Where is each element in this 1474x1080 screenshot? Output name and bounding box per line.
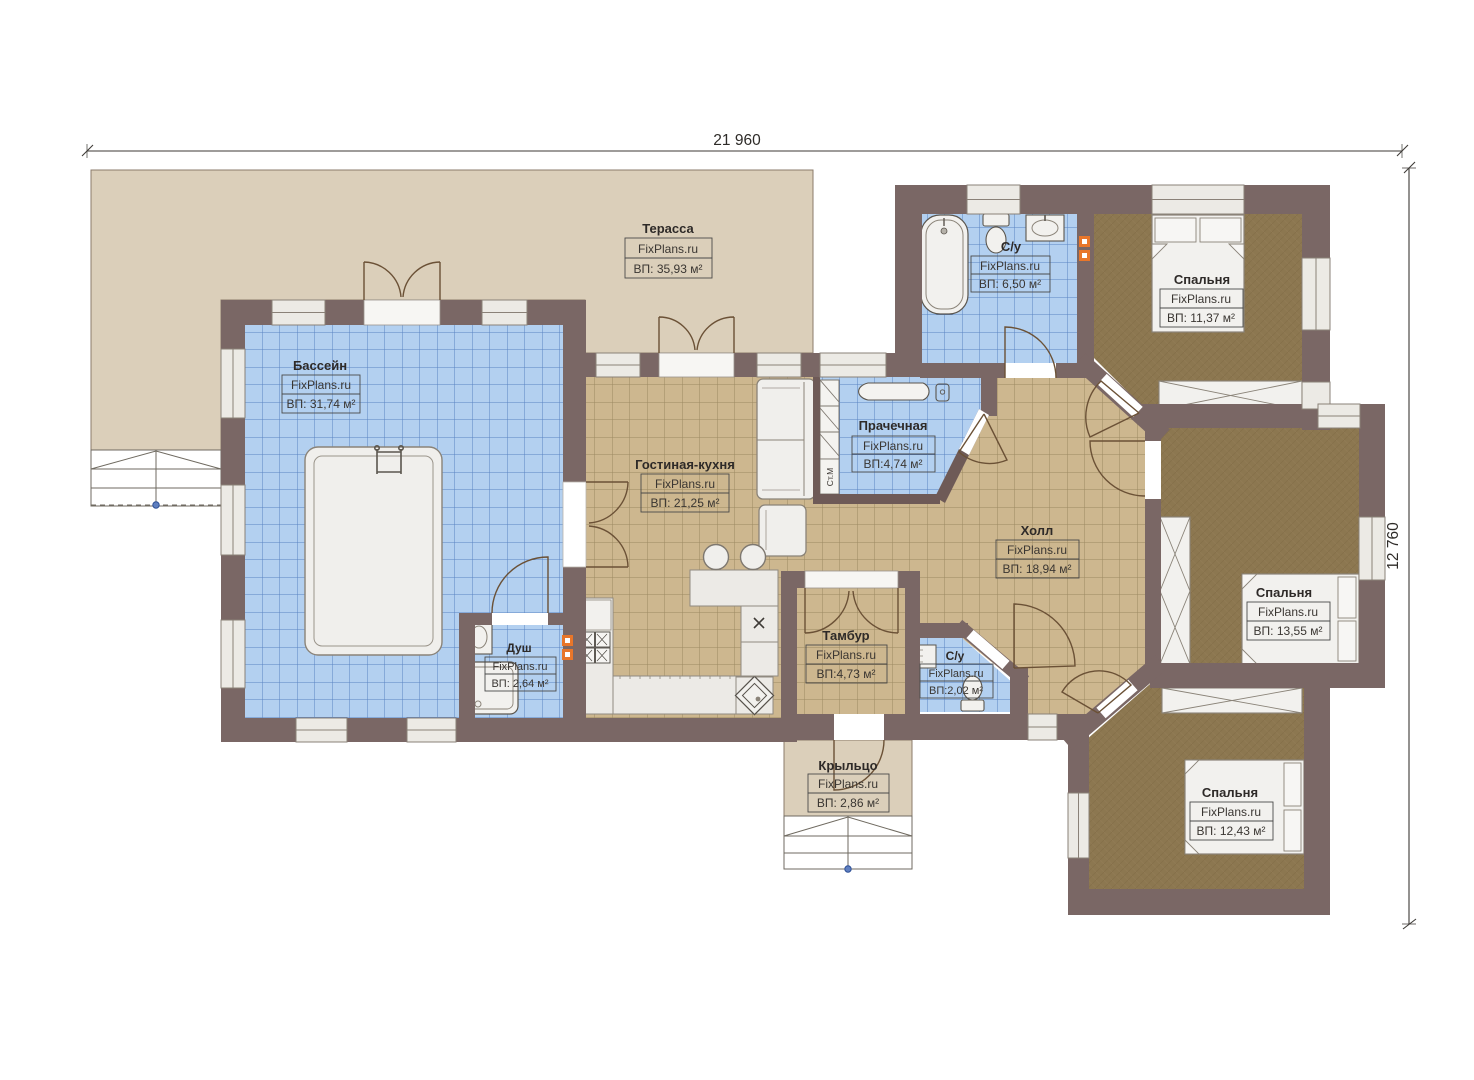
svg-text:Спальня: Спальня (1202, 785, 1258, 800)
svg-text:FixPlans.ru: FixPlans.ru (492, 661, 547, 673)
svg-text:Крыльцо: Крыльцо (818, 758, 877, 773)
svg-text:Терасса: Терасса (642, 221, 694, 236)
svg-text:ВП: 2,64 м²: ВП: 2,64 м² (491, 678, 548, 690)
svg-text:FixPlans.ru: FixPlans.ru (1258, 605, 1318, 619)
svg-text:Бассейн: Бассейн (293, 358, 347, 373)
svg-text:ВП: 12,43 м²: ВП: 12,43 м² (1197, 824, 1266, 838)
svg-text:FixPlans.ru: FixPlans.ru (1171, 292, 1231, 306)
svg-text:Гостиная-кухня: Гостиная-кухня (635, 457, 735, 472)
svg-text:FixPlans.ru: FixPlans.ru (818, 777, 878, 791)
svg-text:ВП: 31,74 м²: ВП: 31,74 м² (287, 397, 356, 411)
svg-text:Спальня: Спальня (1174, 272, 1230, 287)
svg-text:ВП: 18,94 м²: ВП: 18,94 м² (1003, 562, 1072, 576)
svg-text:21 960: 21 960 (713, 132, 761, 149)
svg-text:12 760: 12 760 (1385, 522, 1402, 570)
svg-text:ВП: 13,55 м²: ВП: 13,55 м² (1254, 624, 1323, 638)
svg-text:Ст.М: Ст.М (825, 468, 835, 487)
svg-text:Душ: Душ (506, 641, 531, 655)
svg-text:ВП: 11,37 м²: ВП: 11,37 м² (1167, 311, 1235, 325)
svg-text:FixPlans.ru: FixPlans.ru (816, 648, 876, 662)
svg-text:ВП:4,73 м²: ВП:4,73 м² (817, 667, 876, 681)
svg-text:Прачечная: Прачечная (859, 418, 928, 433)
svg-text:FixPlans.ru: FixPlans.ru (1007, 543, 1067, 557)
svg-text:FixPlans.ru: FixPlans.ru (638, 242, 698, 256)
svg-text:ВП: 35,93 м²: ВП: 35,93 м² (634, 262, 703, 276)
svg-text:FixPlans.ru: FixPlans.ru (980, 259, 1040, 273)
svg-text:Тамбур: Тамбур (822, 628, 869, 643)
svg-text:ВП: 6,50 м²: ВП: 6,50 м² (979, 277, 1041, 291)
svg-text:Холл: Холл (1021, 523, 1054, 538)
svg-text:FixPlans.ru: FixPlans.ru (291, 378, 351, 392)
svg-text:С/у: С/у (946, 649, 965, 663)
svg-text:ВП:4,74 м²: ВП:4,74 м² (864, 457, 923, 471)
svg-text:FixPlans.ru: FixPlans.ru (863, 439, 923, 453)
svg-text:ВП: 2,86 м²: ВП: 2,86 м² (817, 796, 879, 810)
svg-text:FixPlans.ru: FixPlans.ru (1201, 805, 1261, 819)
svg-text:Спальня: Спальня (1256, 585, 1312, 600)
svg-text:FixPlans.ru: FixPlans.ru (928, 668, 983, 680)
svg-text:FixPlans.ru: FixPlans.ru (655, 477, 715, 491)
svg-text:С/у: С/у (1001, 239, 1022, 254)
svg-text:ВП:2,02 м²: ВП:2,02 м² (929, 685, 983, 697)
svg-text:ВП: 21,25 м²: ВП: 21,25 м² (651, 496, 720, 510)
